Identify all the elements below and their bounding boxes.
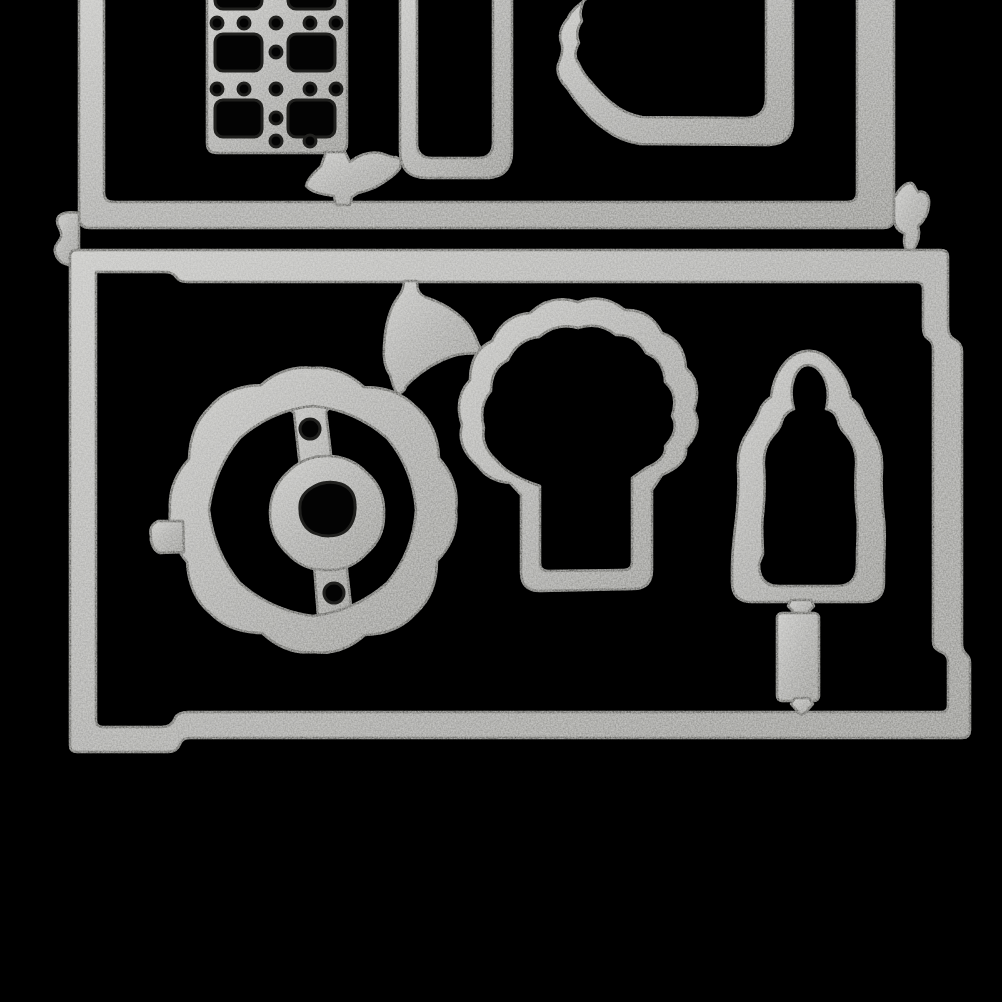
grid-dot-hole: [211, 83, 223, 95]
wreath-side-tab: [150, 521, 184, 553]
wreath-center-hole: [300, 482, 355, 536]
banner-hole-top: [300, 419, 320, 439]
grid-dot-hole: [270, 135, 282, 147]
grid-dot-hole: [270, 83, 282, 95]
grid-window-hole: [215, 0, 262, 9]
grid-window-hole: [288, 34, 335, 71]
grid-dot-hole: [304, 83, 316, 95]
bottle-base-piece: [777, 613, 819, 701]
grid-dot-hole: [304, 135, 316, 147]
grid-dot-hole: [270, 112, 282, 124]
grid-window-hole: [288, 0, 335, 9]
grid-window-hole: [215, 100, 262, 137]
grid-window-hole: [215, 34, 262, 71]
grid-dot-hole: [270, 17, 282, 29]
grid-dot-hole: [211, 17, 223, 29]
product-photo: [0, 0, 1002, 1002]
die-set-photo: [0, 0, 1002, 1002]
grid-dot-hole: [330, 17, 342, 29]
grid-dot-hole: [238, 17, 250, 29]
grid-dot-hole: [330, 83, 342, 95]
grid-window-hole: [288, 100, 335, 137]
grid-dot-hole: [270, 46, 282, 58]
grid-dot-hole: [304, 17, 316, 29]
banner-hole-bottom: [324, 583, 344, 603]
grid-dot-hole: [238, 83, 250, 95]
